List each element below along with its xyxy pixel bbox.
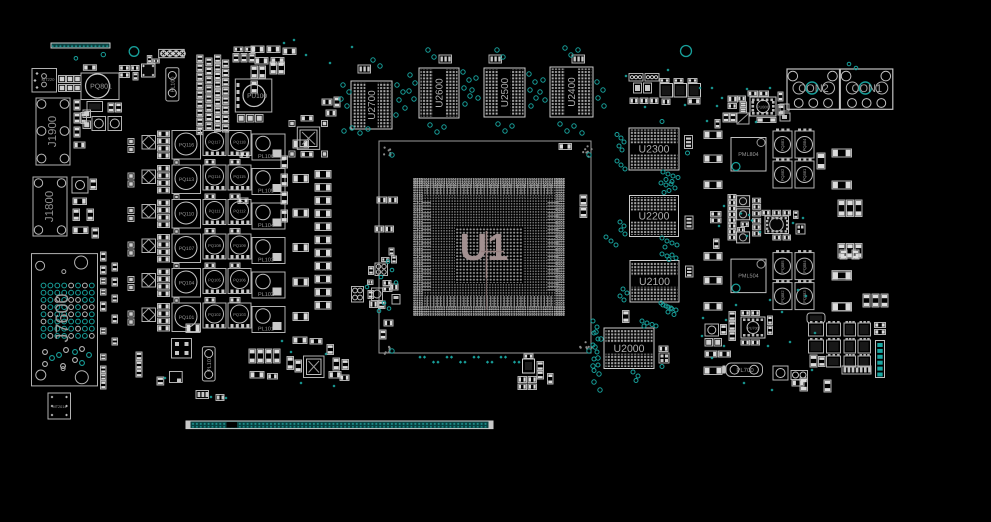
svg-text:PL102: PL102 [258,292,274,298]
svg-text:PQ108: PQ108 [208,243,221,248]
svg-text:U2100: U2100 [639,276,670,288]
svg-text:PQ109: PQ109 [233,243,246,248]
svg-text:PQ107: PQ107 [179,246,195,252]
svg-text:J1900: J1900 [47,116,59,147]
svg-text:PU800: PU800 [757,105,770,110]
svg-text:PL105: PL105 [258,189,274,195]
svg-text:MT2014: MT2014 [53,405,67,409]
svg-text:PQ882: PQ882 [780,168,785,181]
svg-text:PQ884: PQ884 [802,138,807,151]
svg-text:PL101: PL101 [258,327,274,333]
svg-text:PU700: PU700 [747,327,759,331]
svg-text:PML804: PML804 [738,152,759,158]
svg-text:PQ105: PQ105 [208,278,221,283]
svg-text:PQ101: PQ101 [179,315,195,321]
svg-text:PQ801: PQ801 [90,84,112,91]
svg-text:U2200: U2200 [639,211,670,223]
svg-text:J7600: J7600 [52,293,72,342]
svg-text:U1: U1 [460,227,509,269]
svg-text:MT220: MT220 [41,77,55,82]
svg-text:PQ115: PQ115 [233,174,246,179]
svg-text:PL700: PL700 [736,367,754,374]
svg-text:PQ103: PQ103 [233,312,246,317]
svg-text:PQ110: PQ110 [179,212,194,218]
svg-text:PQ113: PQ113 [179,177,194,183]
svg-text:J1800: J1800 [44,191,56,222]
svg-text:PQ116: PQ116 [179,143,194,149]
svg-text:PU100: PU100 [247,93,267,100]
svg-text:PL100: PL100 [171,77,177,93]
svg-text:PQ881: PQ881 [802,168,807,181]
svg-text:PQ104: PQ104 [179,281,195,287]
svg-text:U2500: U2500 [500,77,511,107]
svg-text:PL107: PL107 [207,356,213,372]
svg-text:PL103: PL103 [258,258,274,264]
svg-text:PQ118: PQ118 [233,140,246,145]
svg-text:PML504: PML504 [738,274,759,280]
svg-text:PQ111: PQ111 [209,209,222,214]
svg-text:PQ885: PQ885 [780,260,785,273]
svg-text:PQ102: PQ102 [208,312,221,317]
svg-text:U2400: U2400 [567,77,578,107]
svg-text:PQ114: PQ114 [208,174,221,179]
svg-text:U2000: U2000 [614,343,645,355]
svg-text:PL106: PL106 [258,154,274,160]
svg-text:PQ881: PQ881 [780,138,785,151]
svg-text:PQ884: PQ884 [802,260,807,273]
svg-text:PQ117: PQ117 [208,140,221,145]
svg-text:U2600: U2600 [435,78,446,108]
svg-text:U2300: U2300 [639,144,670,156]
svg-text:PQ106: PQ106 [233,278,246,283]
svg-text:U2700: U2700 [367,90,378,120]
svg-text:PL104: PL104 [258,223,274,229]
svg-text:PQ882: PQ882 [780,290,785,303]
svg-text:CON2: CON2 [798,83,829,95]
svg-text:CON1: CON1 [852,83,883,95]
svg-text:PQ112: PQ112 [233,209,246,214]
